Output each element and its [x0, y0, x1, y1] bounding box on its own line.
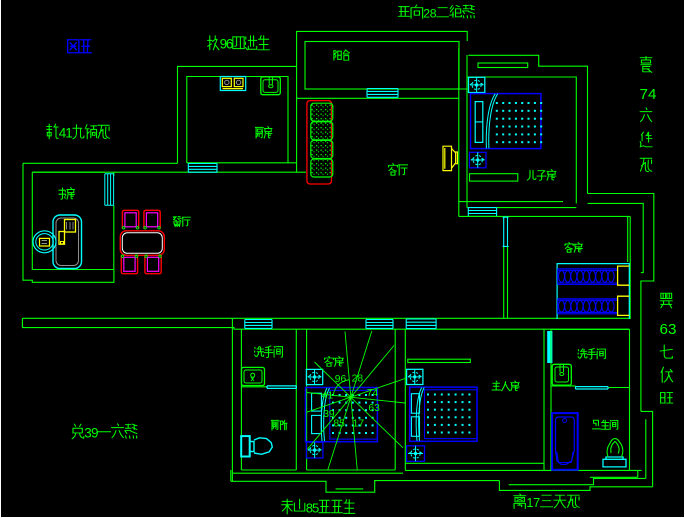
svg-text:28: 28	[352, 373, 364, 384]
svg-text:41: 41	[322, 391, 334, 402]
svg-text:17: 17	[353, 419, 365, 430]
svg-text:63: 63	[368, 403, 380, 414]
svg-text:96: 96	[335, 374, 347, 385]
svg-text:63: 63	[660, 321, 677, 338]
svg-text:5: 5	[312, 500, 319, 515]
svg-text:9: 9	[91, 426, 99, 441]
svg-text:7: 7	[533, 496, 540, 510]
svg-text:8: 8	[430, 6, 437, 20]
svg-text:74: 74	[640, 86, 657, 103]
svg-text:85: 85	[333, 419, 345, 430]
svg-text:6: 6	[226, 37, 234, 52]
svg-text:1: 1	[65, 126, 73, 141]
svg-text:74: 74	[367, 388, 379, 399]
